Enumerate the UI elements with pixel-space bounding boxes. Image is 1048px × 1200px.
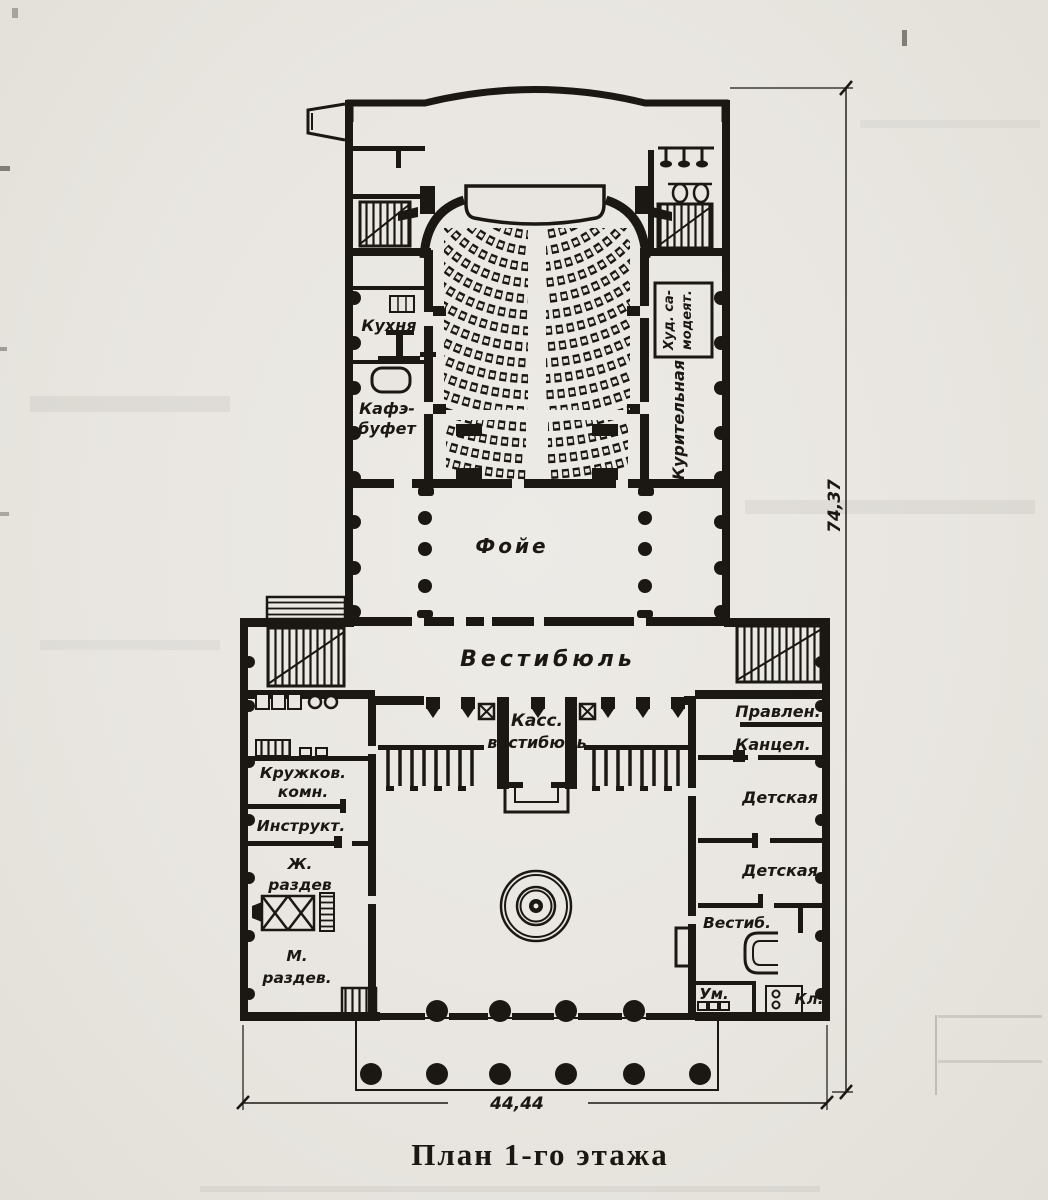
children1-bottom-partition-a — [698, 838, 756, 843]
label-smoking: Курительная — [669, 360, 688, 480]
wc-stall-2 — [316, 748, 327, 756]
right-wing-bottom-wall — [695, 1012, 830, 1021]
courtyard-right-wall — [688, 698, 696, 1016]
drawing-title: План 1-го этажа — [411, 1137, 668, 1172]
rack-bars-left — [388, 750, 472, 786]
rack-rail-right — [584, 745, 690, 750]
rack-base-ticks — [386, 786, 672, 791]
left-small-comb — [320, 893, 334, 931]
instructor-bottom-partition-a — [244, 841, 340, 846]
label-women-2: раздев — [267, 876, 332, 894]
proscenium-pier-left — [420, 186, 435, 214]
label-men-2: раздев. — [261, 969, 331, 987]
label-women-1: Ж. — [287, 855, 313, 873]
label-art-2: модеят. — [680, 290, 695, 350]
label-kitchen: Кухня — [361, 316, 416, 335]
wc-stall-1 — [300, 748, 311, 756]
children2-door-stub — [758, 894, 763, 908]
closet-fixture-2 — [773, 1002, 780, 1009]
instructor-bottom-partition-b — [352, 841, 370, 846]
urinal-fixtures — [668, 184, 712, 202]
label-children-1: Детская — [741, 788, 818, 807]
rack-rail-left — [378, 745, 484, 750]
entrance-canopy — [308, 104, 345, 140]
children1-door-stub — [752, 833, 758, 848]
foyer-vestibule-wall — [352, 610, 726, 626]
label-board: Правлен. — [735, 702, 820, 721]
curved-stair-inner — [753, 941, 778, 965]
label-cafe-2: буфет — [358, 419, 417, 438]
label-cafe-1: Кафэ- — [359, 399, 415, 418]
closet-fixture-1 — [773, 991, 780, 998]
right-wing-top-wall — [695, 690, 830, 699]
label-small-vestibule: Вестиб. — [703, 914, 771, 932]
left-wc-comb — [256, 740, 290, 756]
scanned-page: 74,37 44,44 Кухня Кафэ- буфет Худ. са- м… — [0, 0, 1048, 1200]
courtyard-left-wall — [368, 698, 376, 1016]
instructor-door-stub — [334, 836, 342, 848]
stage-apse-wall — [350, 90, 725, 123]
floor-plan-drawing: 74,37 44,44 Кухня Кафэ- буфет Худ. са- м… — [0, 0, 1048, 1200]
board-bottom-partition — [740, 722, 822, 727]
kitchen-cafe-partition — [352, 360, 426, 364]
wash-side-partition — [752, 981, 756, 1015]
proscenium-pier-right — [635, 186, 650, 214]
label-washroom: Ум. — [699, 985, 729, 1003]
label-instructor: Инструкт. — [257, 817, 345, 835]
small-vest-partition — [798, 905, 803, 933]
dim-width-label: 44,44 — [489, 1094, 544, 1114]
label-children-2: Детская — [741, 861, 818, 880]
left-wing-partition-2 — [349, 194, 425, 199]
auditorium-rear-wall — [352, 479, 726, 496]
theater-right-outer-wall — [722, 100, 730, 252]
office-bottom-partition-b — [758, 755, 822, 760]
label-club-2: комн. — [278, 783, 328, 801]
left-staircase-symbol — [252, 896, 314, 930]
rack-bars-right — [594, 750, 678, 786]
kitchen-stove — [390, 296, 414, 312]
wc-fixtures — [660, 148, 708, 168]
kitchen-top-partition — [352, 286, 426, 290]
wash-fixtures — [698, 1002, 729, 1010]
label-cash-1: Касс. — [511, 711, 563, 731]
dimension-right: 74,37 — [730, 81, 853, 1099]
label-vestibule: Вестибюль — [460, 647, 636, 672]
left-lower-outer-wall — [240, 620, 255, 1020]
cash-bottom-wall-left — [497, 782, 523, 788]
left-corner-steps — [342, 988, 376, 1014]
children2-bottom-partition-a — [698, 903, 762, 908]
fountain — [501, 871, 571, 941]
left-terrace-steps — [267, 597, 345, 619]
entry-steps-inner — [515, 788, 558, 802]
club-bottom-partition — [244, 804, 346, 809]
vestibule-top-wall-left — [240, 618, 354, 627]
left-wing-floor-wall — [345, 248, 431, 256]
cash-bottom-wall-right — [551, 782, 577, 788]
stage-platform — [466, 186, 604, 224]
label-club-1: Кружков. — [260, 764, 346, 782]
club-door-stub — [340, 799, 346, 813]
curved-stair-outer — [745, 933, 778, 973]
label-art-1: Худ. са- — [662, 290, 677, 351]
left-wing-partition-stub — [396, 150, 401, 168]
theater-left-outer-wall — [345, 100, 353, 252]
left-wing-partition-1 — [349, 146, 425, 151]
portico-columns-row-2 — [360, 1063, 711, 1085]
kitchen-cafe-rooms — [352, 286, 436, 392]
right-outer-hatched-wall — [714, 252, 730, 622]
children1-bottom-partition-b — [770, 838, 822, 843]
label-foyer: Фойе — [475, 534, 548, 558]
portico-outline — [356, 1018, 718, 1090]
courtyard-top-wall-left — [368, 696, 424, 705]
dimension-bottom: 44,44 — [237, 1025, 833, 1114]
label-office: Канцел. — [735, 735, 810, 754]
label-men-1: М. — [286, 947, 307, 965]
label-cash-2: вестибюль — [487, 733, 587, 752]
buffet-counter — [372, 368, 410, 392]
label-closet: Кл. — [795, 990, 824, 1008]
